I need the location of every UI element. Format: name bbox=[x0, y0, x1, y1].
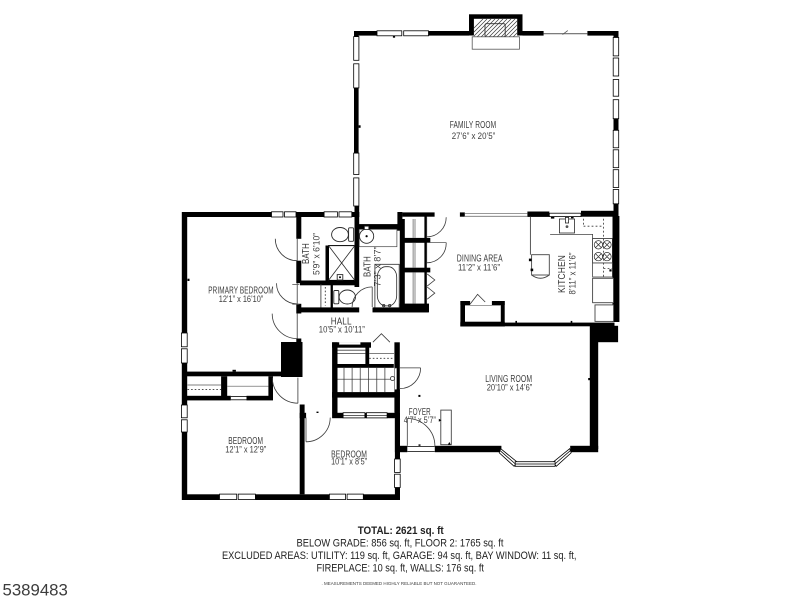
svg-text:5’9” x 6’10”: 5’9” x 6’10” bbox=[312, 233, 323, 275]
svg-text:11’2” x 11’6”: 11’2” x 11’6” bbox=[458, 263, 500, 274]
svg-text:12’1” x 12’9”: 12’1” x 12’9” bbox=[225, 445, 266, 456]
svg-text:27’6” x 20’5”: 27’6” x 20’5” bbox=[452, 131, 496, 142]
svg-text:. MEASUREMENTS DEEMED HIGHLY R: . MEASUREMENTS DEEMED HIGHLY RELIABLE BU… bbox=[322, 581, 477, 587]
svg-text:EXCLUDED AREAS: UTILITY: 119 s: EXCLUDED AREAS: UTILITY: 119 sq. ft, GAR… bbox=[222, 550, 577, 562]
svg-text:7’3” x 8’7”: 7’3” x 8’7” bbox=[373, 247, 384, 287]
svg-text:8’11” x 11’6”: 8’11” x 11’6” bbox=[567, 253, 578, 295]
svg-text:FAMILY ROOM: FAMILY ROOM bbox=[450, 120, 497, 131]
svg-text:KITCHEN: KITCHEN bbox=[557, 255, 568, 293]
svg-text:FIREPLACE: 10 sq. ft, WALLS: 1: FIREPLACE: 10 sq. ft, WALLS: 176 sq. ft bbox=[316, 563, 484, 575]
svg-text:BELOW GRADE: 856 sq. ft, FLOOR: BELOW GRADE: 856 sq. ft, FLOOR 2: 1765 s… bbox=[297, 538, 504, 550]
svg-text:5389483: 5389483 bbox=[3, 581, 68, 600]
svg-text:TOTAL: 2621 sq. ft: TOTAL: 2621 sq. ft bbox=[358, 525, 444, 537]
svg-text:12’1” x 16’10”: 12’1” x 16’10” bbox=[219, 294, 264, 305]
svg-text:20’10” x 14’6”: 20’10” x 14’6” bbox=[487, 382, 533, 393]
svg-text:10’1” x 8’5”: 10’1” x 8’5” bbox=[331, 457, 367, 468]
svg-text:10’5” x 10’11”: 10’5” x 10’11” bbox=[319, 325, 365, 336]
svg-text:4’7” x 5’7”: 4’7” x 5’7” bbox=[404, 415, 436, 426]
